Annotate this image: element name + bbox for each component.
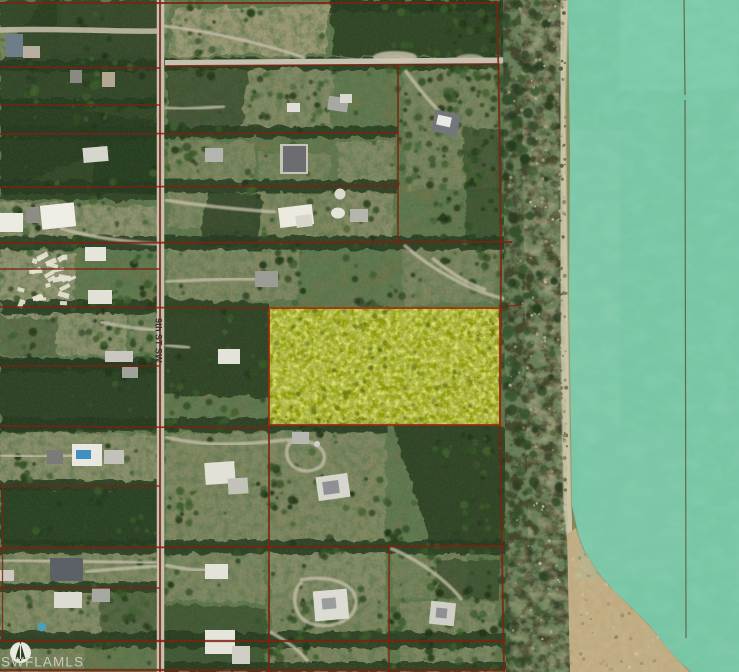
svg-text:SWFLAMLS: SWFLAMLS — [1, 655, 84, 670]
svg-text:9th ST SW: 9th ST SW — [154, 318, 164, 363]
